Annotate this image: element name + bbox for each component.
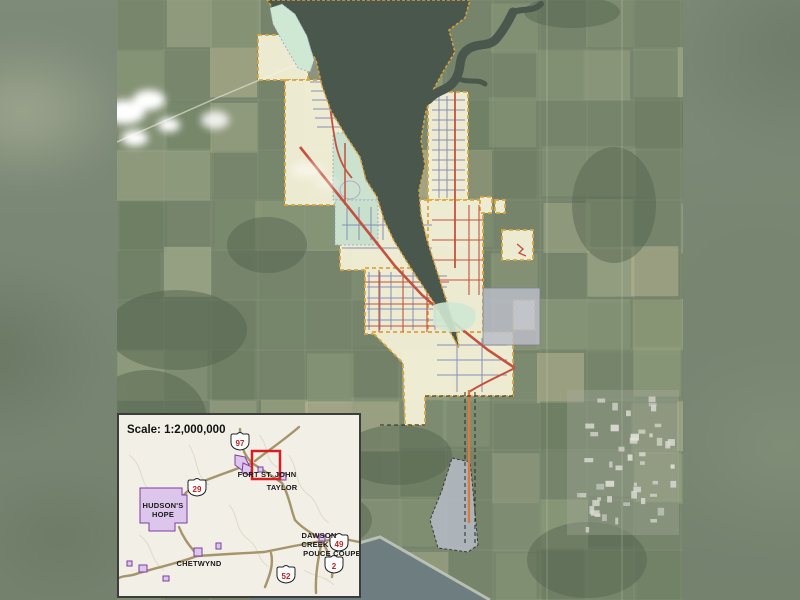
shield-49-number: 49 xyxy=(335,540,344,549)
chetwynd-area xyxy=(194,548,202,556)
city-label-hudsons-hope-1: HUDSON'S xyxy=(143,501,184,510)
inset-locator-map: 97 29 49 2 52 Scale: 1:2,000,000 FORT ST… xyxy=(117,413,361,598)
city-label-fort-st-john: FORT ST. JOHN xyxy=(238,470,297,479)
gray-area-east xyxy=(483,288,540,345)
inset-canvas: 97 29 49 2 52 Scale: 1:2,000,000 FORT ST… xyxy=(119,415,359,596)
shield-2-number: 2 xyxy=(332,562,337,571)
city-label-chetwynd: CHETWYND xyxy=(177,559,222,568)
city-label-pouce-coupe: POUCE COUPE xyxy=(303,549,359,558)
highway-shield-2: 2 xyxy=(325,556,343,574)
highway-shield-97: 97 xyxy=(231,433,249,451)
lakeside-park xyxy=(433,302,476,332)
highway-shield-29: 29 xyxy=(188,479,206,497)
shield-52-number: 52 xyxy=(282,572,291,581)
highway-shield-52: 52 xyxy=(277,566,295,584)
shield-29-number: 29 xyxy=(193,485,202,494)
city-label-dawson-creek-2: CREEK xyxy=(301,540,329,549)
scale-label: Scale: 1:2,000,000 xyxy=(127,424,225,436)
city-label-taylor: TAYLOR xyxy=(267,483,298,492)
city-label-hudsons-hope-2: HOPE xyxy=(152,510,174,519)
city-label-dawson-creek-1: DAWSON xyxy=(302,531,337,540)
map-screenshot: 97 29 49 2 52 Scale: 1:2,000,000 FORT ST… xyxy=(0,0,800,600)
shield-97-number: 97 xyxy=(236,439,245,448)
